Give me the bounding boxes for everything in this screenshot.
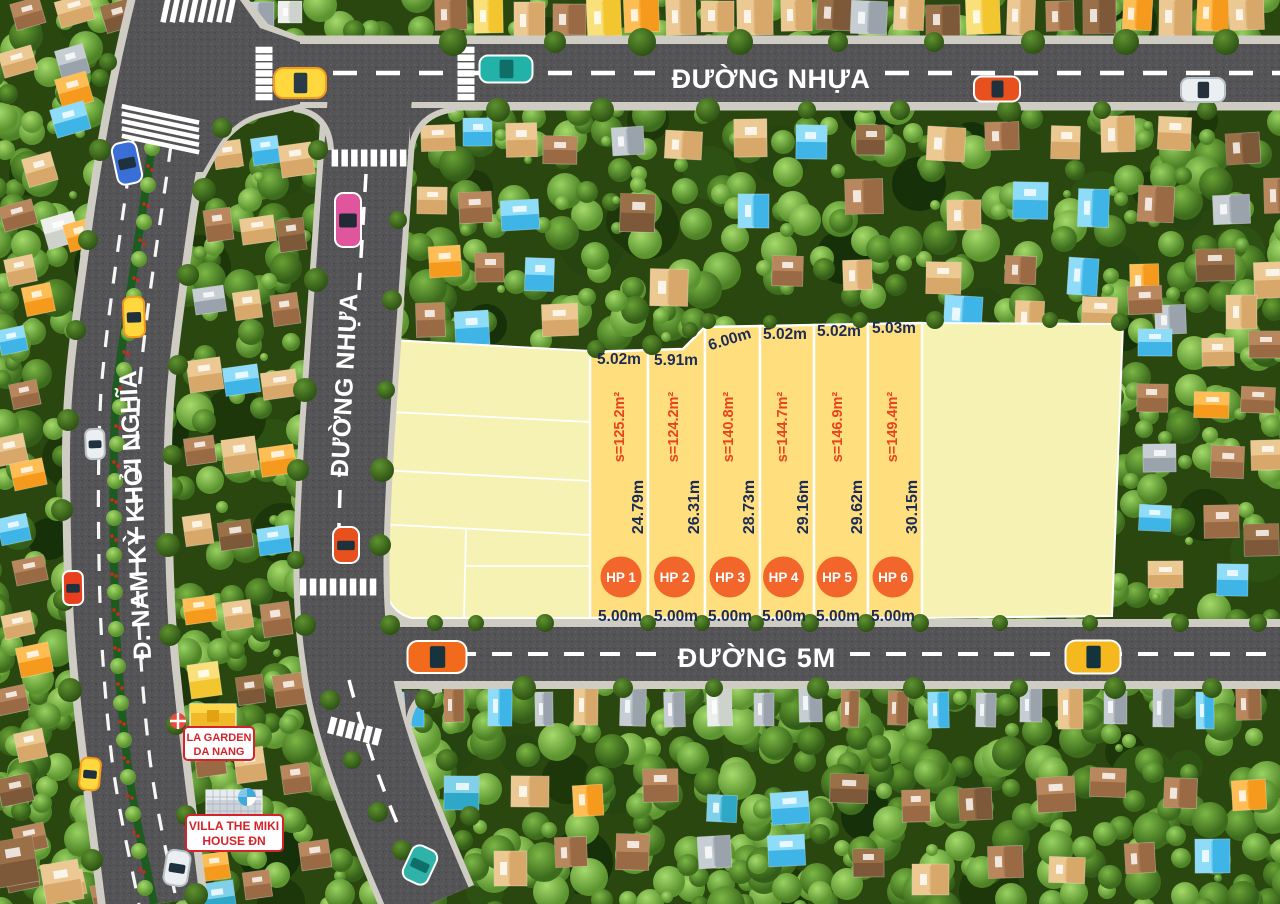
svg-text:5.02m: 5.02m [763, 326, 807, 343]
svg-text:5.00m: 5.00m [762, 608, 806, 625]
svg-text:5.00m: 5.00m [708, 608, 752, 625]
svg-text:29.16m: 29.16m [795, 480, 812, 534]
svg-text:s=144.7m²: s=144.7m² [775, 392, 791, 463]
svg-text:5.00m: 5.00m [654, 608, 698, 625]
svg-text:5.00m: 5.00m [816, 608, 860, 625]
svg-text:28.73m: 28.73m [741, 480, 758, 534]
svg-text:HP 4: HP 4 [769, 570, 799, 585]
svg-text:HP 6: HP 6 [878, 570, 908, 585]
svg-text:30.15m: 30.15m [904, 480, 921, 534]
svg-text:HOUSE ĐN: HOUSE ĐN [202, 834, 265, 848]
svg-text:VILLA THE MIKI: VILLA THE MIKI [189, 819, 279, 833]
svg-text:5.02m: 5.02m [817, 323, 861, 340]
svg-text:s=149.4m²: s=149.4m² [885, 392, 901, 463]
svg-text:DA NANG: DA NANG [194, 746, 245, 758]
svg-text:s=124.2m²: s=124.2m² [666, 392, 682, 463]
svg-text:HP 1: HP 1 [606, 570, 636, 585]
svg-text:s=125.2m²: s=125.2m² [612, 392, 628, 463]
svg-text:HP 3: HP 3 [715, 570, 745, 585]
svg-text:HP 2: HP 2 [660, 570, 690, 585]
svg-text:29.62m: 29.62m [849, 480, 866, 534]
svg-text:24.79m: 24.79m [630, 480, 647, 534]
svg-text:5.91m: 5.91m [654, 352, 698, 369]
svg-text:ĐƯỜNG NHỰA: ĐƯỜNG NHỰA [672, 63, 871, 94]
svg-text:5.00m: 5.00m [871, 608, 915, 625]
svg-text:ĐƯỜNG 5M: ĐƯỜNG 5M [678, 642, 836, 673]
svg-text:HP 5: HP 5 [822, 570, 852, 585]
svg-text:5.00m: 5.00m [598, 608, 642, 625]
svg-text:26.31m: 26.31m [686, 480, 703, 534]
svg-text:s=146.9m²: s=146.9m² [830, 392, 846, 463]
svg-text:5.02m: 5.02m [597, 351, 641, 368]
svg-text:5.03m: 5.03m [872, 320, 916, 337]
svg-text:s=140.8m²: s=140.8m² [721, 392, 737, 463]
svg-text:LA GARDEN: LA GARDEN [187, 732, 252, 744]
